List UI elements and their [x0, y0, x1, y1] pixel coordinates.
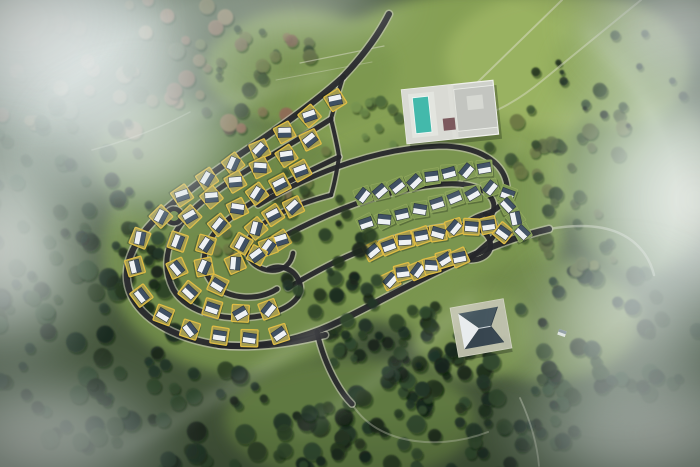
- render-stage: [0, 0, 700, 467]
- aerial-masterplan-render: [0, 0, 700, 467]
- vignette: [0, 0, 700, 467]
